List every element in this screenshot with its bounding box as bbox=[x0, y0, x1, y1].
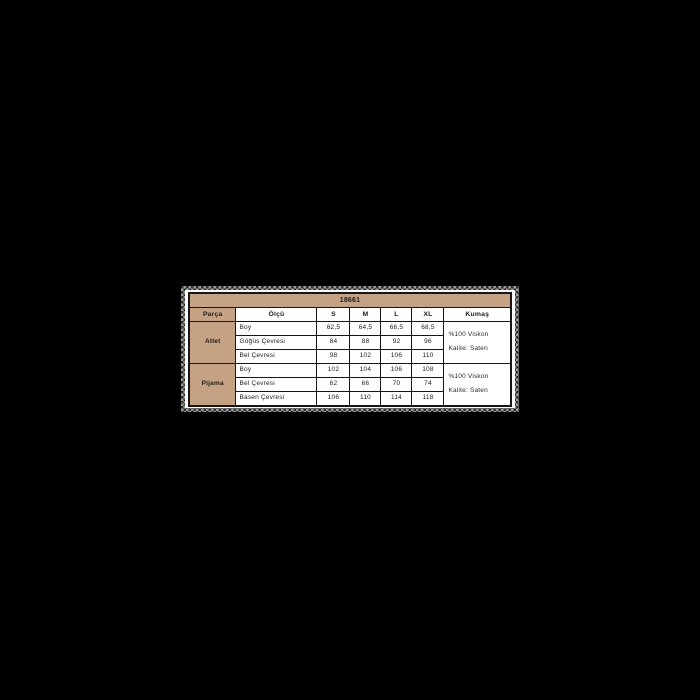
size-value-cell: 110 bbox=[350, 392, 381, 406]
measure-cell: Göğüs Çevresi bbox=[236, 336, 317, 350]
column-header-l: L bbox=[381, 308, 412, 322]
size-value-cell: 102 bbox=[350, 350, 381, 364]
part-cell-atlet: Atlet bbox=[189, 322, 236, 364]
size-value-cell: 106 bbox=[317, 392, 350, 406]
fabric-text: %100 Viskon Kalite: Saten bbox=[444, 374, 510, 395]
size-value-cell: 104 bbox=[350, 364, 381, 378]
measure-cell: Boy bbox=[236, 364, 317, 378]
size-value-cell: 66 bbox=[350, 378, 381, 392]
size-chart-panel: 18661 Parça Ölçü S M L XL Kumaş Atlet bbox=[181, 286, 519, 412]
fabric-line: %100 Viskon bbox=[448, 374, 510, 381]
column-header-s: S bbox=[317, 308, 350, 322]
title-row: 18661 bbox=[189, 293, 511, 308]
size-value-cell: 114 bbox=[381, 392, 412, 406]
size-value-cell: 106 bbox=[381, 364, 412, 378]
size-value-cell: 84 bbox=[317, 336, 350, 350]
size-value-cell: 108 bbox=[412, 364, 444, 378]
size-value-cell: 106 bbox=[381, 350, 412, 364]
size-value-cell: 96 bbox=[412, 336, 444, 350]
size-value-cell: 64,5 bbox=[350, 322, 381, 336]
size-value-cell: 98 bbox=[317, 350, 350, 364]
column-header-m: M bbox=[350, 308, 381, 322]
size-value-cell: 74 bbox=[412, 378, 444, 392]
size-chart-card: 18661 Parça Ölçü S M L XL Kumaş Atlet bbox=[185, 290, 515, 408]
fabric-cell-pijama: %100 Viskon Kalite: Saten bbox=[444, 364, 511, 406]
size-value-cell: 118 bbox=[412, 392, 444, 406]
product-code: 18661 bbox=[189, 293, 511, 308]
size-value-cell: 68,5 bbox=[412, 322, 444, 336]
size-value-cell: 110 bbox=[412, 350, 444, 364]
size-value-cell: 62 bbox=[317, 378, 350, 392]
column-header-xl: XL bbox=[412, 308, 444, 322]
page-background: 18661 Parça Ölçü S M L XL Kumaş Atlet bbox=[0, 0, 700, 700]
header-row: Parça Ölçü S M L XL Kumaş bbox=[189, 308, 511, 322]
fabric-line: %100 Viskon bbox=[448, 332, 510, 339]
size-value-cell: 92 bbox=[381, 336, 412, 350]
column-header-olcu: Ölçü bbox=[236, 308, 317, 322]
table-row: Atlet Boy 62,5 64,5 66,5 68,5 %100 Visko… bbox=[189, 322, 511, 336]
part-cell-pijama: Pijama bbox=[189, 364, 236, 406]
size-value-cell: 70 bbox=[381, 378, 412, 392]
fabric-cell-atlet: %100 Viskon Kalite: Saten bbox=[444, 322, 511, 364]
measure-cell: Bel Çevresi bbox=[236, 350, 317, 364]
size-value-cell: 88 bbox=[350, 336, 381, 350]
fabric-line: Kalite: Saten bbox=[448, 346, 510, 353]
column-header-parca: Parça bbox=[189, 308, 236, 322]
measure-cell: Bel Çevresi bbox=[236, 378, 317, 392]
fabric-text: %100 Viskon Kalite: Saten bbox=[444, 332, 510, 353]
column-header-kumas: Kumaş bbox=[444, 308, 511, 322]
table-row: Pijama Boy 102 104 106 108 %100 Viskon K… bbox=[189, 364, 511, 378]
size-value-cell: 102 bbox=[317, 364, 350, 378]
fabric-line: Kalite: Saten bbox=[448, 388, 510, 395]
size-value-cell: 66,5 bbox=[381, 322, 412, 336]
measure-cell: Basen Çevresi bbox=[236, 392, 317, 406]
size-value-cell: 62,5 bbox=[317, 322, 350, 336]
size-chart-table: 18661 Parça Ölçü S M L XL Kumaş Atlet bbox=[188, 292, 512, 407]
measure-cell: Boy bbox=[236, 322, 317, 336]
